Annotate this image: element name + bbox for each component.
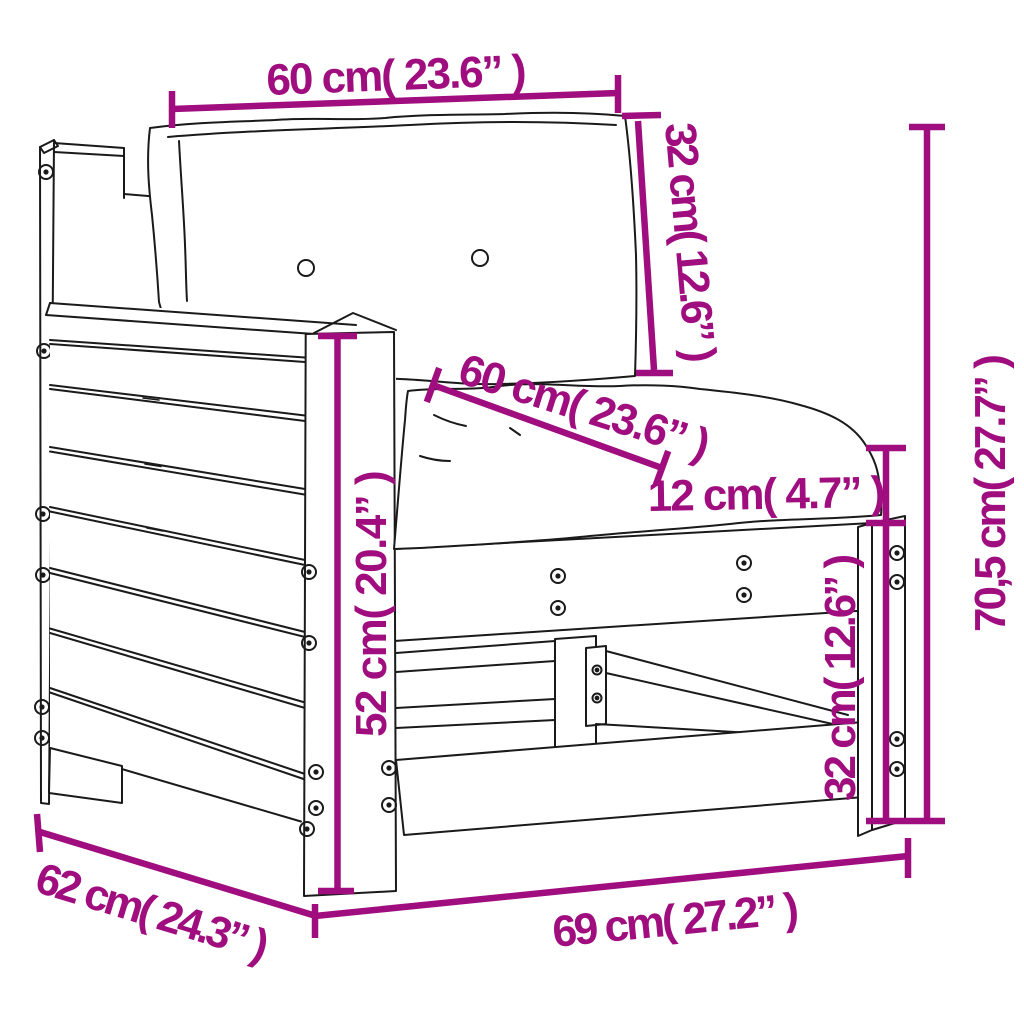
svg-text:60 cm( 23.6” ): 60 cm( 23.6” ) <box>266 46 526 105</box>
svg-text:12 cm( 4.7” ): 12 cm( 4.7” ) <box>647 468 884 521</box>
svg-text:32 cm( 12.6” ): 32 cm( 12.6” ) <box>816 556 865 801</box>
svg-text:70,5 cm( 27.7” ): 70,5 cm( 27.7” ) <box>966 356 1015 632</box>
svg-text:52 cm( 20.4” ): 52 cm( 20.4” ) <box>347 472 396 737</box>
